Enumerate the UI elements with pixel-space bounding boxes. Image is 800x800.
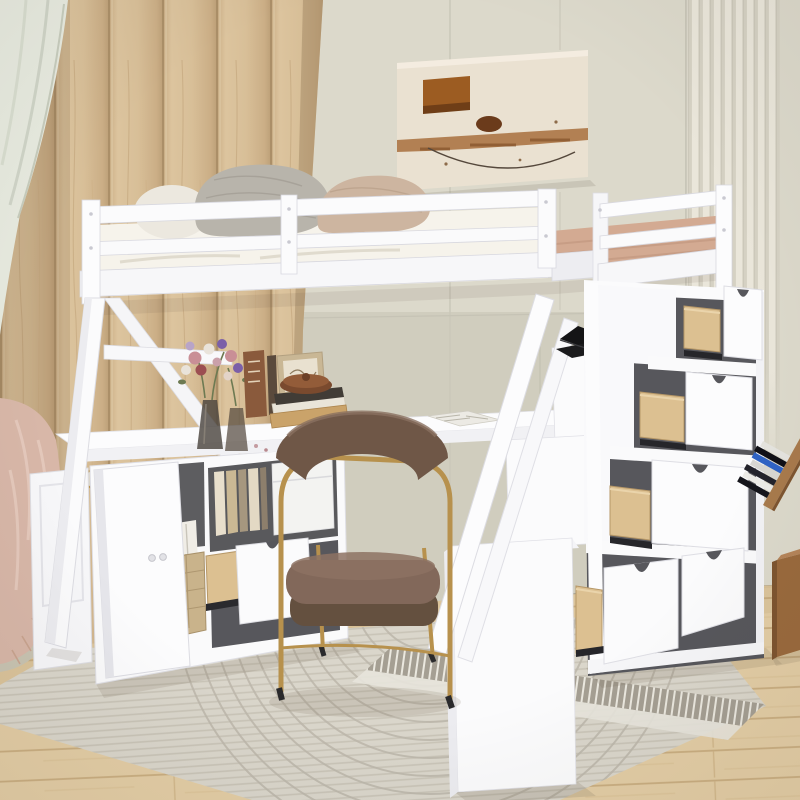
product-photo bbox=[0, 0, 800, 800]
scene bbox=[0, 0, 800, 800]
vignette bbox=[0, 0, 800, 800]
